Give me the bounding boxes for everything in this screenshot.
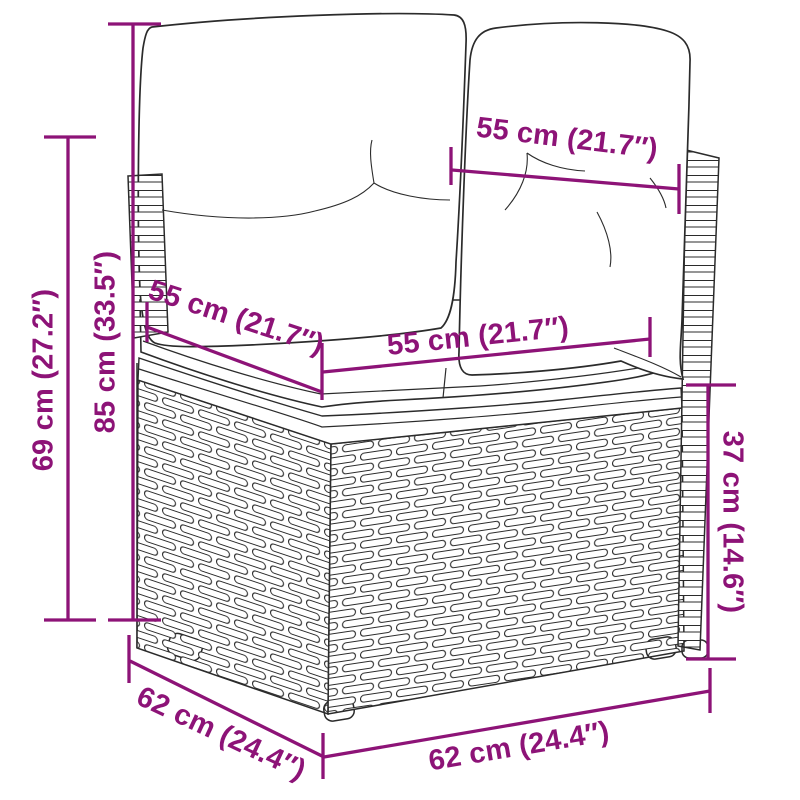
label-base-height: 37 cm (14.6″) xyxy=(718,431,747,614)
sofa-base xyxy=(137,358,708,722)
label-overall-height: 69 cm (27.2″) xyxy=(30,289,59,472)
label-back-height: 85 cm (33.5″) xyxy=(92,251,121,434)
dimension-diagram: 69 cm (27.2″) 85 cm (33.5″) 55 cm (21.7″… xyxy=(0,0,800,800)
